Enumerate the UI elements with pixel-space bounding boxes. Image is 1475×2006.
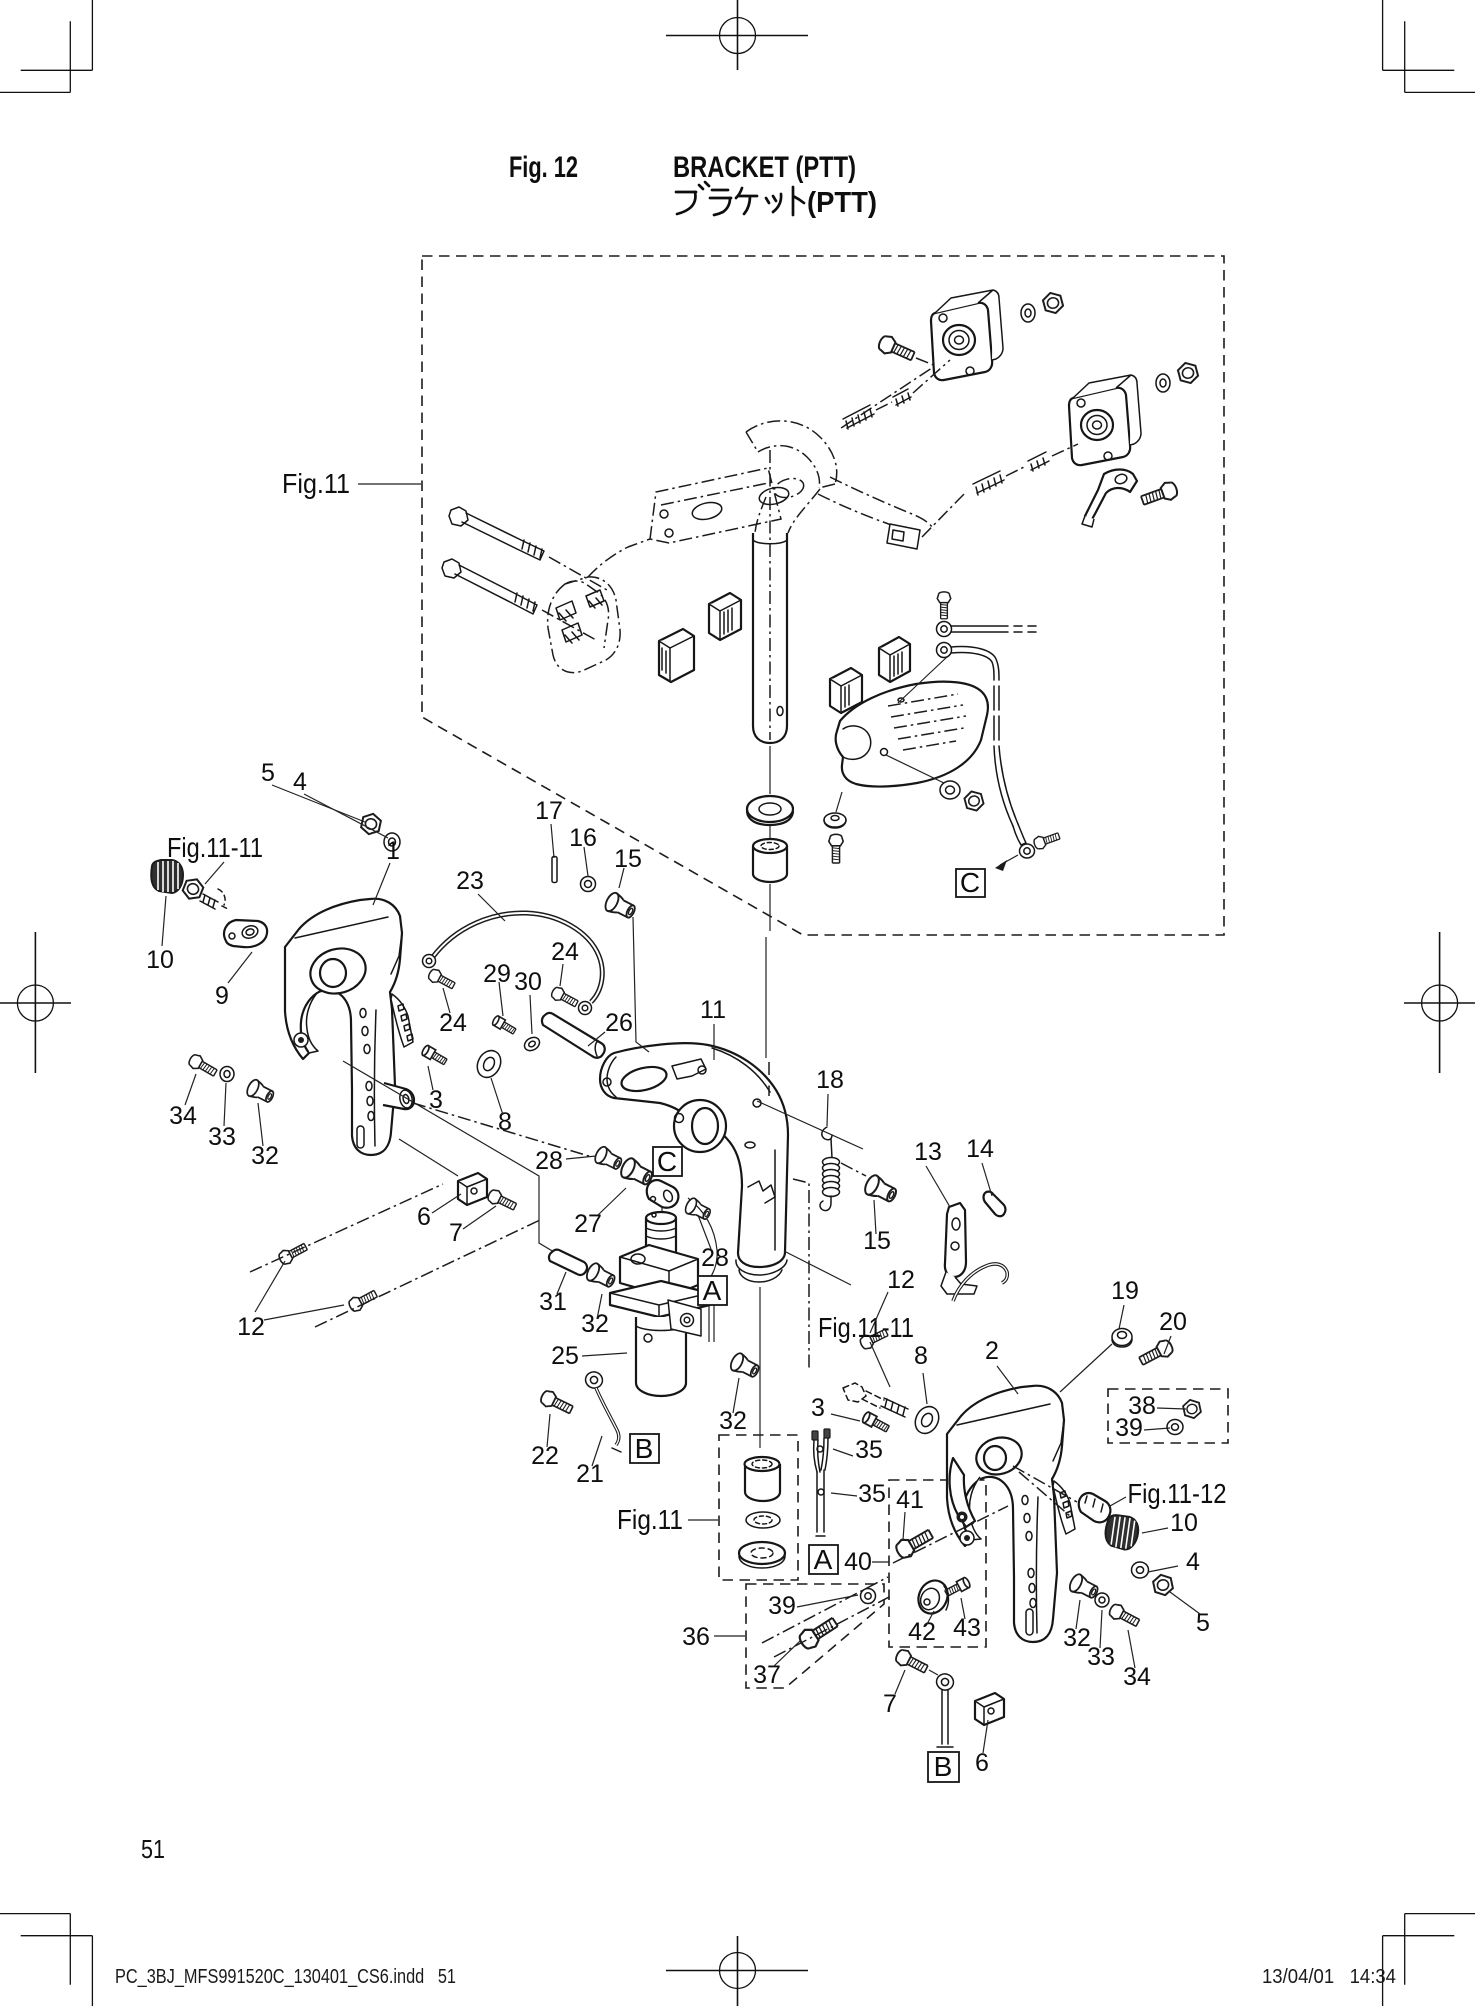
svg-text:32: 32 [251, 1142, 279, 1170]
svg-text:Fig.11-11: Fig.11-11 [818, 1312, 914, 1343]
svg-text:30: 30 [514, 968, 542, 996]
svg-text:Fig. 12: Fig. 12 [509, 151, 578, 184]
svg-text:39: 39 [1115, 1414, 1143, 1442]
svg-text:Fig.11-12: Fig.11-12 [1128, 1478, 1227, 1509]
svg-text:C: C [657, 1146, 677, 1177]
svg-text:7: 7 [449, 1219, 463, 1247]
svg-text:15: 15 [863, 1227, 891, 1255]
svg-text:B: B [934, 1751, 953, 1782]
svg-text:A: A [814, 1544, 833, 1575]
svg-text:25: 25 [551, 1342, 579, 1370]
svg-text:(PTT): (PTT) [807, 187, 877, 219]
svg-text:42: 42 [908, 1618, 936, 1646]
svg-text:Fig.11: Fig.11 [282, 468, 350, 499]
svg-text:22: 22 [531, 1442, 559, 1470]
svg-text:31: 31 [539, 1288, 567, 1316]
svg-text:4: 4 [1186, 1548, 1200, 1576]
svg-text:15: 15 [614, 845, 642, 873]
svg-text:8: 8 [498, 1108, 512, 1136]
svg-text:35: 35 [855, 1436, 883, 1464]
svg-text:37: 37 [753, 1661, 781, 1689]
svg-text:32: 32 [581, 1310, 609, 1338]
svg-text:34: 34 [1123, 1663, 1151, 1691]
svg-text:21: 21 [576, 1460, 604, 1488]
svg-text:17: 17 [535, 797, 563, 825]
svg-text:BRACKET (PTT): BRACKET (PTT) [673, 151, 856, 184]
svg-text:C: C [960, 867, 980, 898]
svg-text:13/04/01 14:34: 13/04/01 14:34 [1262, 1966, 1396, 1988]
svg-text:24: 24 [551, 938, 579, 966]
svg-text:11: 11 [700, 996, 726, 1024]
svg-text:2: 2 [985, 1337, 999, 1365]
svg-text:Fig.11-11: Fig.11-11 [167, 832, 263, 863]
svg-text:36: 36 [682, 1623, 710, 1651]
svg-text:13: 13 [914, 1138, 942, 1166]
svg-text:19: 19 [1111, 1277, 1139, 1305]
svg-text:12: 12 [237, 1313, 265, 1341]
svg-text:10: 10 [1170, 1509, 1198, 1537]
svg-text:39: 39 [768, 1592, 796, 1620]
svg-text:28: 28 [701, 1244, 729, 1272]
svg-text:40: 40 [844, 1548, 872, 1576]
svg-text:35: 35 [858, 1480, 886, 1508]
svg-text:29: 29 [483, 960, 511, 988]
svg-text:B: B [635, 1433, 654, 1464]
svg-text:14: 14 [966, 1135, 994, 1163]
svg-text:PC_3BJ_MFS991520C_130401_CS6.i: PC_3BJ_MFS991520C_130401_CS6.indd 51 [115, 1966, 456, 1988]
svg-text:28: 28 [535, 1147, 563, 1175]
svg-text:41: 41 [896, 1486, 924, 1514]
svg-text:A: A [703, 1275, 722, 1306]
svg-text:10: 10 [146, 946, 174, 974]
svg-text:18: 18 [816, 1066, 844, 1094]
svg-text:34: 34 [169, 1102, 197, 1130]
svg-text:4: 4 [293, 768, 307, 796]
svg-text:43: 43 [953, 1614, 981, 1642]
svg-text:33: 33 [208, 1123, 236, 1151]
svg-text:27: 27 [574, 1210, 602, 1238]
svg-text:3: 3 [811, 1394, 825, 1422]
svg-text:33: 33 [1087, 1643, 1115, 1671]
svg-text:6: 6 [975, 1749, 989, 1777]
svg-text:3: 3 [429, 1086, 443, 1114]
svg-text:23: 23 [456, 867, 484, 895]
svg-text:1: 1 [386, 837, 400, 865]
svg-text:9: 9 [215, 982, 229, 1010]
svg-text:6: 6 [417, 1203, 431, 1231]
svg-text:12: 12 [887, 1266, 915, 1294]
svg-text:16: 16 [569, 824, 597, 852]
svg-text:8: 8 [914, 1342, 928, 1370]
svg-text:20: 20 [1159, 1308, 1187, 1336]
svg-text:24: 24 [439, 1009, 467, 1037]
svg-text:51: 51 [141, 1834, 165, 1864]
svg-text:26: 26 [605, 1009, 633, 1037]
svg-text:5: 5 [261, 759, 275, 787]
svg-text:Fig.11: Fig.11 [617, 1504, 683, 1535]
svg-text:7: 7 [883, 1690, 897, 1718]
